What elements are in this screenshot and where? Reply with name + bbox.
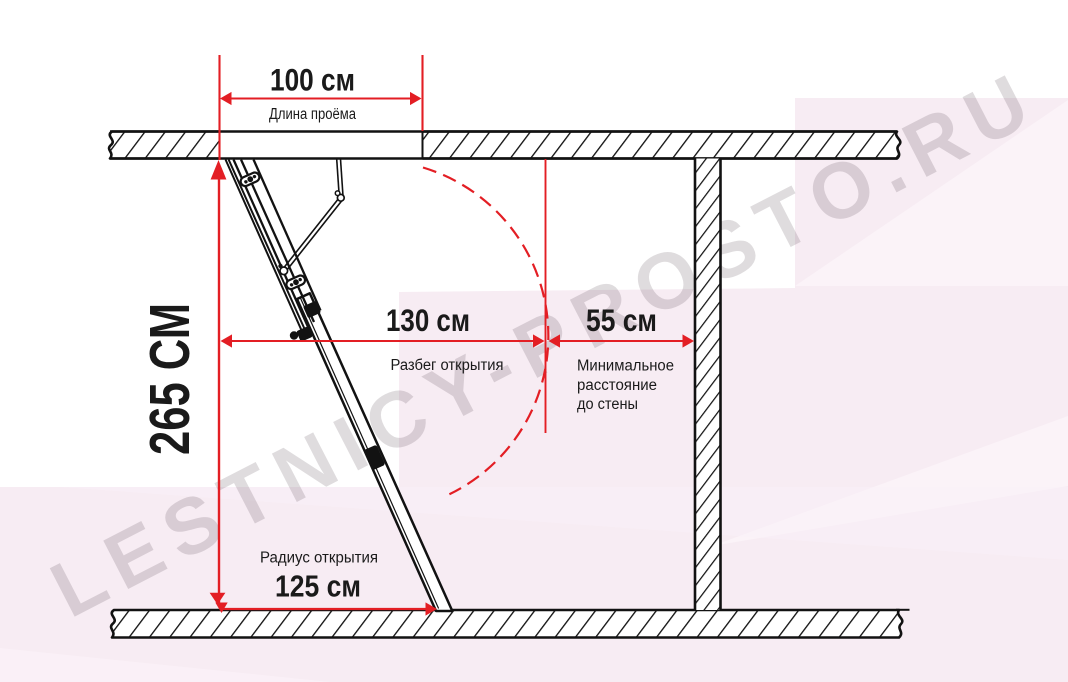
svg-text:130 см: 130 см: [386, 302, 470, 338]
svg-text:Минимальное: Минимальное: [577, 358, 674, 375]
svg-text:100 см: 100 см: [270, 62, 355, 98]
svg-text:Разбег открытия: Разбег открытия: [391, 357, 504, 374]
svg-text:Радиус открытия: Радиус открытия: [260, 550, 378, 567]
svg-text:55 см: 55 см: [586, 302, 657, 338]
svg-text:до стены: до стены: [577, 396, 638, 413]
svg-text:расстояние: расстояние: [577, 377, 657, 394]
svg-text:125 см: 125 см: [275, 569, 361, 604]
svg-text:265 СМ: 265 СМ: [138, 303, 202, 455]
svg-text:Длина проёма: Длина проёма: [269, 106, 356, 123]
